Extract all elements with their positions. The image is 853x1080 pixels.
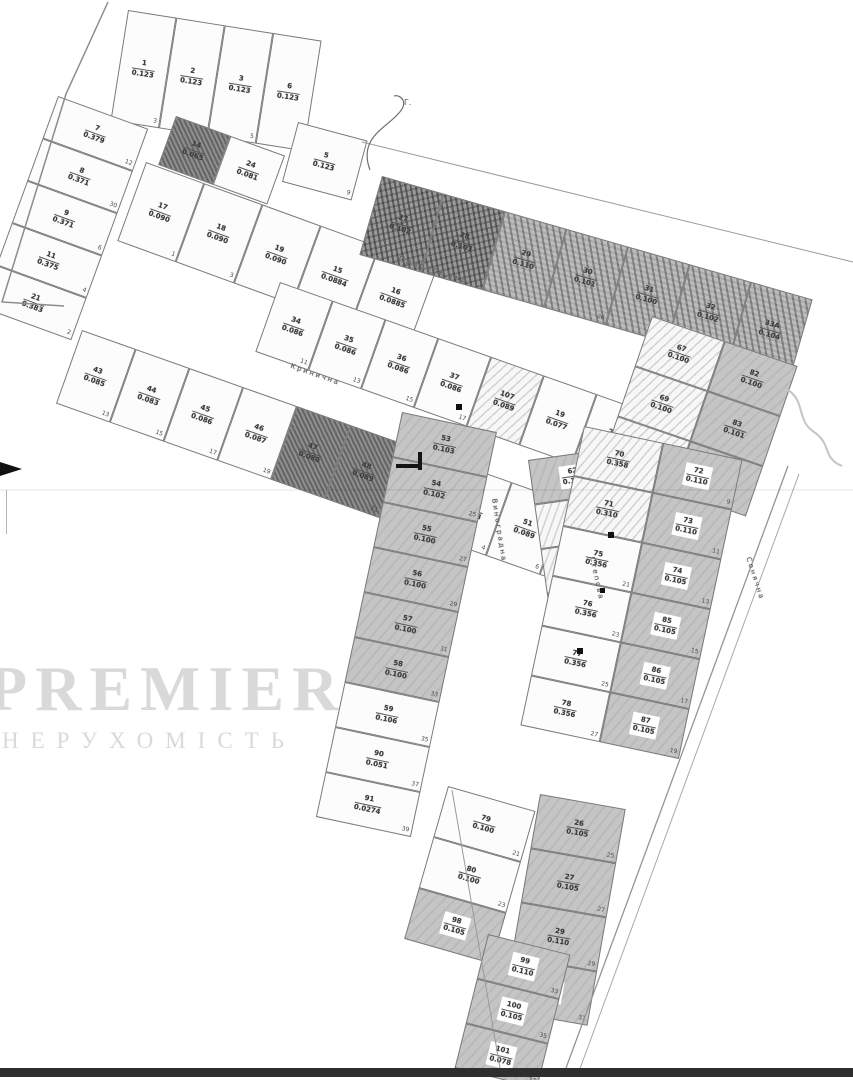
plot-label: 470.080 [297, 440, 324, 465]
plot-subnumber: 6 [97, 244, 103, 252]
plot-subnumber: 5 [249, 133, 254, 141]
plot-subnumber: 4 [480, 544, 486, 552]
plot-subnumber: 25 [600, 680, 609, 688]
plot-label: 730.110 [674, 514, 700, 537]
plot-label: 210.383 [20, 290, 47, 316]
plot-label: 190.077 [544, 407, 571, 432]
plot-label: 180.090 [205, 220, 232, 246]
plot-label: 510.089 [512, 516, 539, 541]
plot-label: 350.086 [333, 332, 360, 357]
plot-subnumber: 1 [170, 250, 176, 258]
edge-arrow-icon [0, 462, 22, 476]
plot-label: 720.110 [685, 465, 711, 488]
plot-label: 700.358 [605, 448, 631, 471]
plot-label: 140.065 [181, 138, 208, 164]
plot-subnumber: 29 [587, 960, 596, 968]
survey-dot [456, 404, 462, 410]
plot-subnumber: 11 [711, 547, 720, 555]
plot-subnumber: 13 [101, 410, 111, 419]
plot-subnumber: 26 [596, 313, 605, 322]
plot-subnumber: 17 [680, 697, 689, 705]
plot-blocks-layer: 10.123320.123530.123560.123970.3791280.3… [0, 0, 853, 1080]
plot-label: 850.105 [653, 614, 679, 637]
plot-subnumber: 12 [124, 158, 134, 167]
plot-subnumber: 23 [611, 630, 620, 638]
plot-label: 450.086 [190, 402, 217, 427]
plot-label: 70.379 [82, 121, 109, 147]
plot-subnumber: 25 [606, 852, 615, 860]
plot-subnumber: 37 [411, 780, 420, 788]
plot-label: 540.102 [422, 478, 448, 501]
plot-label: 33А0.104 [757, 318, 784, 343]
plot-label: 260.105 [565, 817, 590, 840]
plot-label: 1010.078 [488, 1044, 514, 1068]
plot-label: 800.100 [457, 863, 484, 888]
plot-subnumber: 35 [539, 1032, 548, 1041]
plot-subnumber: 19 [669, 747, 678, 755]
plot-subnumber: 23 [497, 900, 506, 909]
plot-label: 290.110 [511, 247, 538, 272]
plot-label: 1000.105 [499, 999, 525, 1023]
plot-subnumber: 13 [701, 597, 710, 605]
plot-subnumber: 21 [622, 581, 631, 589]
plot-cell-5: 50.1239 [282, 122, 368, 201]
plot-label: 300.101 [573, 265, 600, 290]
plot-subnumber: 30 [108, 200, 118, 209]
plot-subnumber: 13 [352, 376, 362, 385]
plot-label: 190.090 [264, 242, 291, 268]
plot-label: 770.356 [563, 647, 589, 670]
plot-label: 910.0274 [353, 792, 383, 816]
plot-subnumber: 39 [401, 825, 410, 833]
plot-label: 320.102 [696, 300, 723, 325]
plot-label: 440.083 [136, 383, 163, 408]
survey-dot [608, 532, 614, 538]
plot-subnumber: 3 [153, 117, 158, 125]
survey-dot [600, 588, 605, 593]
plot-label: 790.100 [471, 812, 498, 837]
plot-subnumber: 21 [511, 849, 520, 858]
plot-label: 740.105 [664, 564, 690, 587]
plot-label: 550.100 [413, 523, 439, 546]
plot-label: 870.105 [632, 714, 658, 737]
plot-label: 10.123 [131, 58, 156, 80]
plot-label: 690.100 [649, 391, 676, 416]
plot-label: 170.090 [147, 199, 174, 225]
plot-label: 240.081 [235, 157, 262, 183]
plot-label: 560.100 [403, 568, 429, 591]
plot-label: 830.101 [722, 416, 749, 441]
plot-subnumber: 33 [430, 690, 439, 698]
plot-label: 820.100 [739, 366, 766, 391]
plot-subnumber: 31 [439, 645, 448, 653]
plot-label: 980.105 [442, 914, 469, 939]
creek-annotation: Г. [404, 98, 411, 107]
plot-subnumber: 15 [405, 395, 415, 404]
plot-label: 580.100 [384, 658, 410, 681]
plot-subnumber: 6 [534, 563, 540, 571]
plot-subnumber: 27 [458, 555, 467, 563]
cadastral-map: 10.123320.123530.123560.123970.3791280.3… [0, 0, 853, 1080]
plot-subnumber: 33 [550, 987, 559, 996]
plot-subnumber: 3 [228, 272, 234, 280]
plot-subnumber: 29 [449, 600, 458, 608]
plot-subnumber: 31 [578, 1014, 587, 1022]
scan-bottom-border [0, 1068, 853, 1077]
plot-label: 80.371 [66, 163, 93, 189]
plot-label: 530.103 [432, 433, 458, 456]
plot-label: 60.123 [276, 81, 301, 103]
plot-label: 480.089 [351, 459, 378, 484]
plot-subnumber: 27 [590, 730, 599, 738]
plot-label: 90.371 [51, 205, 78, 231]
plot-block-b5: 50.1239 [282, 122, 368, 201]
plot-subnumber: 17 [208, 448, 218, 457]
plot-label: 460.087 [243, 421, 270, 446]
plot-subnumber: 19 [262, 467, 272, 476]
plot-subnumber: 4 [81, 286, 87, 294]
plot-label: 710.310 [595, 498, 621, 521]
plot-label: 20.123 [179, 66, 204, 88]
plot-label: 430.085 [82, 364, 109, 389]
plot-label: 50.123 [312, 149, 338, 173]
plot-label: 290.110 [546, 926, 571, 949]
plot-label: 280.103 [450, 230, 477, 255]
plot-subnumber: 9 [726, 498, 731, 506]
plot-subnumber: 35 [420, 735, 429, 743]
plot-subnumber: 21 [369, 505, 379, 514]
plot-label: 590.106 [374, 703, 400, 726]
plot-label: 110.375 [36, 248, 63, 274]
plot-subnumber: 9 [346, 189, 352, 197]
plot-label: 1070.089 [492, 388, 519, 413]
plot-label: 160.0885 [378, 283, 410, 310]
plot-label: 360.086 [386, 351, 413, 376]
survey-dot [577, 648, 583, 654]
plot-subnumber: 15 [690, 647, 699, 655]
plot-label: 860.105 [642, 664, 668, 687]
plot-subnumber: 25 [468, 510, 477, 518]
plot-label: 30.123 [228, 73, 253, 95]
plot-label: 270.102 [388, 212, 415, 237]
plot-label: 150.0884 [320, 262, 352, 289]
plot-subnumber: 15 [154, 429, 164, 438]
plot-subnumber: 17 [457, 414, 467, 423]
plot-label: 370.086 [439, 370, 466, 395]
plot-label: 270.105 [556, 871, 581, 894]
plot-label: 780.356 [552, 697, 578, 720]
plot-label: 990.110 [511, 955, 537, 979]
plot-label: 760.356 [574, 597, 600, 620]
plot-label: 570.100 [394, 613, 420, 636]
plot-subnumber: 27 [597, 906, 606, 914]
edge-tick-mark [6, 490, 7, 534]
plot-label: 340.086 [280, 313, 307, 338]
plot-subnumber: 2 [66, 329, 72, 337]
plot-label: 310.100 [634, 283, 661, 308]
plot-label: 900.051 [365, 748, 391, 771]
benchmark-icon-stem [418, 452, 422, 470]
plot-label: 670.100 [666, 341, 693, 366]
